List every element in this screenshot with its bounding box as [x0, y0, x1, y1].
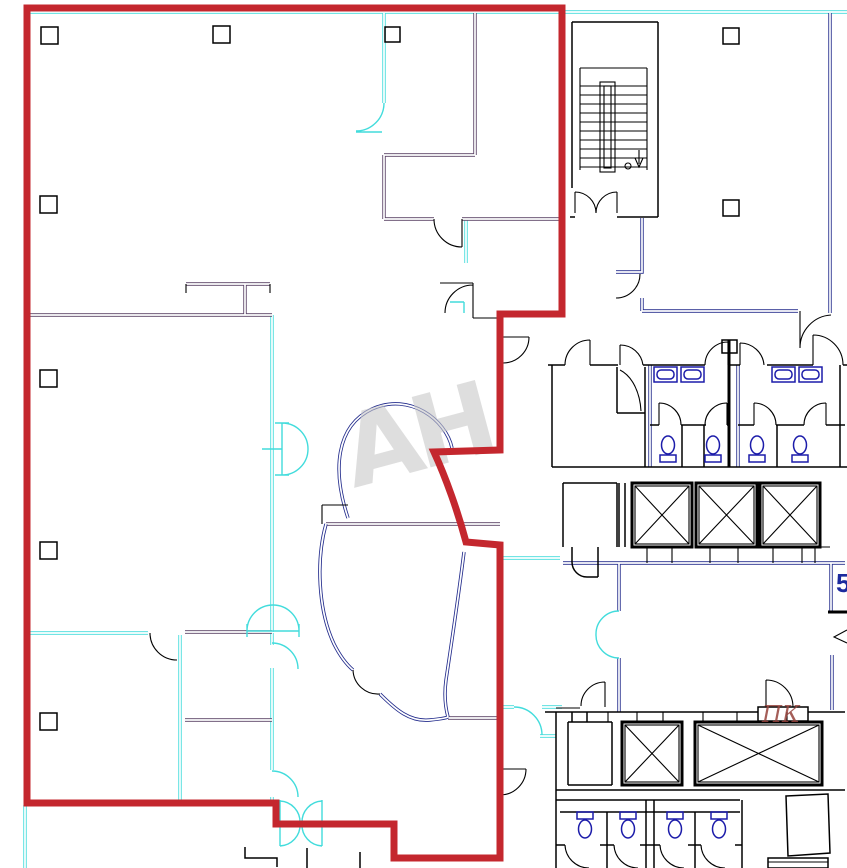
structural-columns — [40, 26, 739, 730]
column-icon — [40, 370, 57, 387]
door-arc-icon — [500, 769, 526, 795]
sink-icon — [654, 367, 677, 382]
bottom-wall-fragments — [245, 612, 847, 868]
column-icon — [41, 27, 58, 44]
door-arc-icon — [556, 682, 605, 708]
section-arrow-icon — [834, 630, 847, 643]
staircase — [570, 22, 658, 217]
toilet-icon — [711, 812, 727, 838]
column-icon — [213, 26, 230, 43]
toilets-lower — [577, 812, 727, 838]
toilet-icon — [705, 436, 721, 462]
elevator-shaft-icon — [622, 722, 682, 785]
wall-fragment — [245, 847, 360, 868]
column-icon — [723, 28, 739, 44]
watermark-text: AH — [330, 360, 502, 511]
toilet-icon — [620, 812, 636, 838]
purple-walls — [27, 13, 562, 720]
door-arc-icon — [434, 219, 462, 247]
toilet-icon — [749, 436, 765, 462]
sink-icon — [681, 367, 704, 382]
elevator-shaft-icon — [760, 483, 820, 547]
wall-core — [27, 13, 562, 720]
elevator-shaft-icon — [632, 483, 692, 547]
duct-door — [620, 370, 641, 411]
door-arc-icon — [150, 633, 177, 660]
stall-door-arcs — [659, 403, 826, 425]
door-arc-icon — [440, 283, 497, 318]
door-arc-icon — [813, 335, 843, 365]
door-arc-icon — [565, 340, 590, 365]
floor-plan: AH ПК 5 — [0, 0, 847, 868]
staircase-icon — [580, 68, 647, 170]
sink-icon — [772, 367, 795, 382]
stair-stringer-inner — [604, 86, 611, 168]
stall-door-arcs — [565, 845, 725, 868]
column-icon — [40, 542, 57, 559]
wall-step — [450, 302, 464, 313]
wall-outline — [27, 13, 562, 720]
sink-icon — [799, 367, 822, 382]
edge-number-label: 5 — [836, 568, 847, 598]
restroom-block-lower — [556, 794, 830, 868]
floor-plan-canvas: AH ПК 5 — [0, 0, 847, 868]
blue-walls — [563, 13, 845, 712]
column-icon — [40, 196, 57, 213]
double-door-icon — [575, 192, 617, 213]
door-arc-icon — [272, 771, 298, 797]
toilet-icon — [792, 436, 808, 462]
side-room-walls — [786, 794, 830, 856]
toilet-icon — [667, 812, 683, 838]
door-arc-icon — [620, 345, 643, 365]
fire-hose-label: ПК — [761, 702, 801, 728]
black-door-arcs — [150, 219, 831, 795]
side-box — [768, 858, 828, 868]
toilet-icon — [660, 436, 676, 462]
elevator-shaft-icon — [695, 722, 822, 785]
door-arc-icon — [356, 103, 384, 132]
door-arc-icon — [272, 643, 298, 669]
door-arc-icon — [800, 311, 831, 348]
door-arc-icon — [503, 337, 529, 363]
stair-marker-circle — [625, 163, 631, 169]
door-arc-icon — [616, 274, 640, 298]
elevator-shaft-icon — [696, 483, 757, 547]
column-icon — [40, 713, 57, 730]
column-icon — [385, 27, 400, 42]
wall-outline — [563, 13, 845, 712]
elevator-door-jambs — [647, 547, 830, 563]
restroom-walls — [548, 365, 847, 467]
double-door-icon — [596, 611, 619, 658]
door-arc-icon — [740, 343, 764, 365]
toilet-icon — [577, 812, 593, 838]
door-arc-icon — [353, 670, 380, 694]
restroom-block-upper — [548, 335, 847, 467]
stair-enclosure — [570, 22, 658, 217]
half-door-icon — [262, 423, 308, 475]
wall-core — [563, 13, 845, 712]
column-icon — [723, 200, 739, 216]
door-arc-icon — [514, 707, 542, 735]
